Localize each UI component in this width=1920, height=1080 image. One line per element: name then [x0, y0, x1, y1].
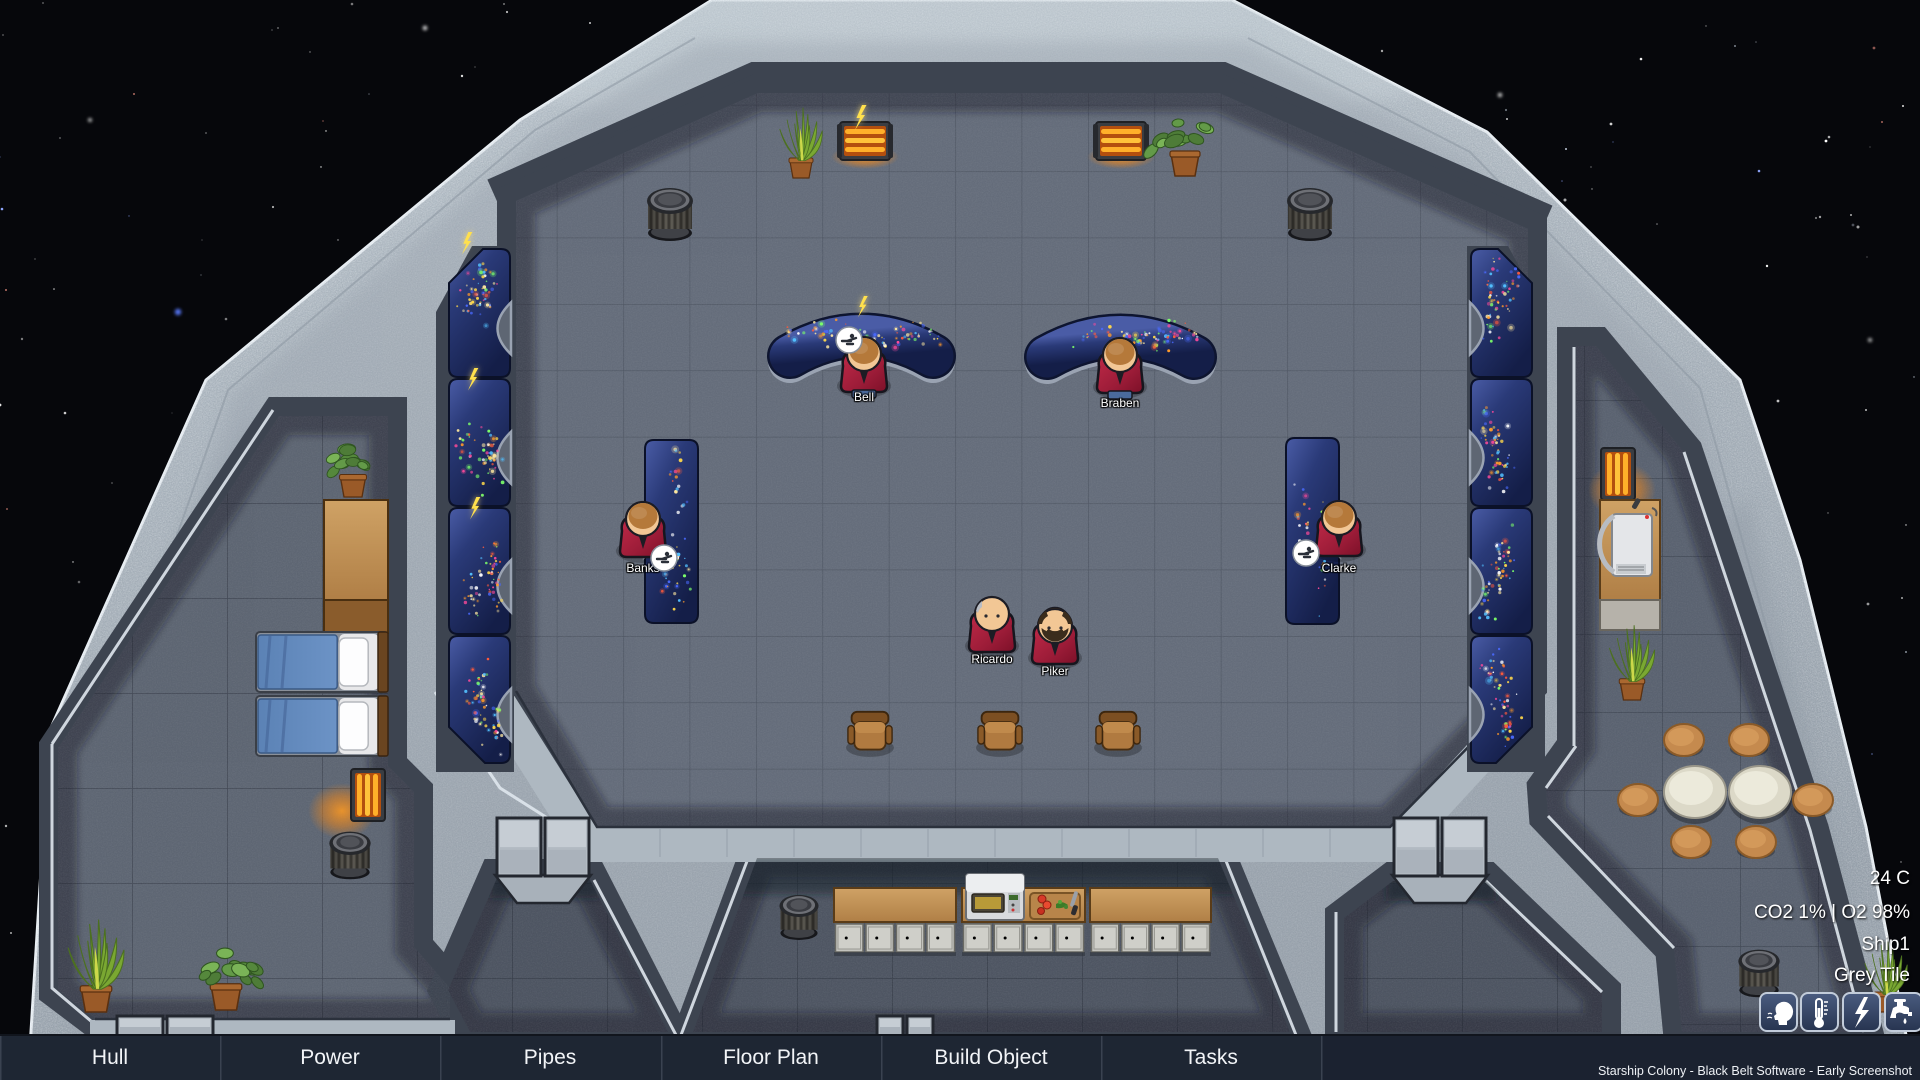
svg-text:Piker: Piker: [1041, 664, 1068, 678]
svg-text:Ricardo: Ricardo: [971, 652, 1013, 666]
svg-text:Braben: Braben: [1101, 396, 1140, 410]
svg-text:CO2 1% | O2 98%: CO2 1% | O2 98%: [1754, 902, 1910, 923]
svg-text:Starship Colony - Black Belt S: Starship Colony - Black Belt Software - …: [1598, 1064, 1913, 1078]
svg-text:Pipes: Pipes: [524, 1046, 577, 1069]
svg-text:Ship1: Ship1: [1861, 934, 1910, 955]
svg-text:Floor Plan: Floor Plan: [723, 1046, 819, 1069]
svg-text:Tasks: Tasks: [1184, 1046, 1238, 1069]
svg-text:24 C: 24 C: [1870, 868, 1910, 889]
svg-text:Power: Power: [300, 1046, 360, 1069]
svg-text:Hull: Hull: [92, 1046, 128, 1069]
svg-text:Build Object: Build Object: [934, 1046, 1047, 1069]
svg-text:Clarke: Clarke: [1322, 561, 1357, 575]
svg-text:Grey Tile: Grey Tile: [1834, 965, 1910, 986]
svg-text:Bell: Bell: [854, 390, 874, 404]
